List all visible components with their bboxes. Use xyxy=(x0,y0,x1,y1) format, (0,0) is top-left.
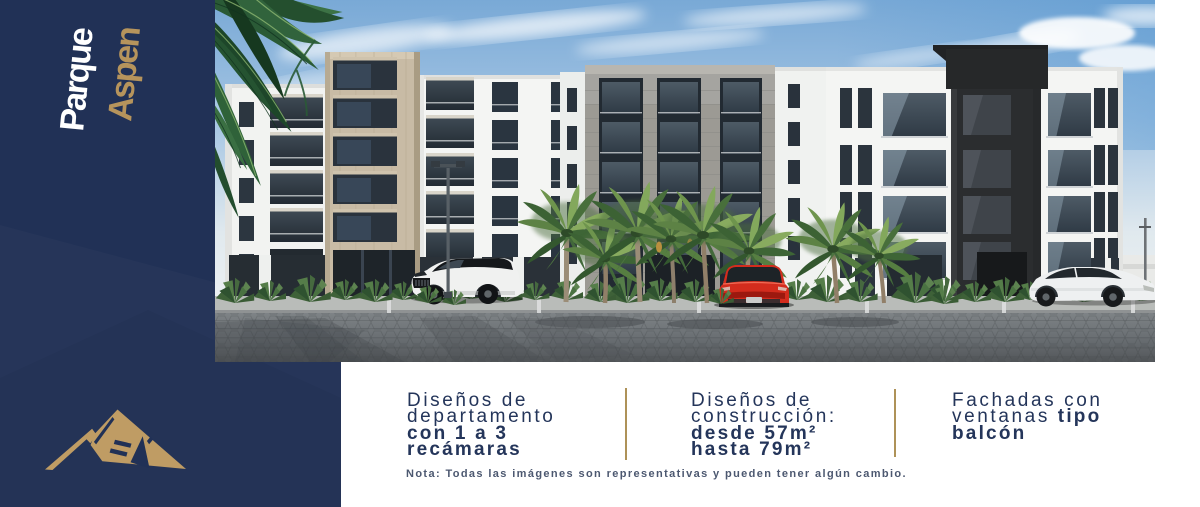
svg-text:Aspen: Aspen xyxy=(101,26,148,123)
